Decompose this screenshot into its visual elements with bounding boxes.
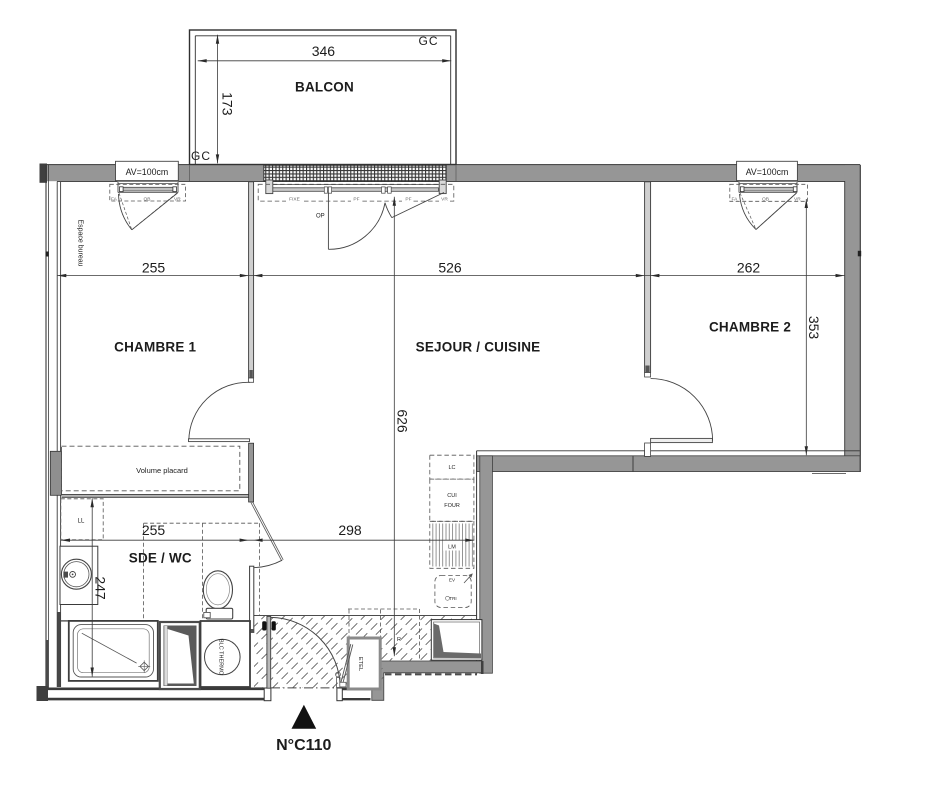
svg-text:SDE / WC: SDE / WC [129, 551, 192, 566]
svg-text:OB: OB [762, 197, 769, 203]
svg-text:PF: PF [353, 197, 359, 203]
svg-text:FA: FA [732, 197, 739, 203]
svg-text:FA: FA [111, 197, 118, 203]
svg-text:CHAMBRE 1: CHAMBRE 1 [114, 340, 196, 355]
svg-text:VR: VR [174, 197, 181, 203]
svg-text:OP: OP [316, 214, 325, 220]
svg-text:LM: LM [448, 545, 456, 551]
svg-text:PF: PF [405, 197, 411, 203]
svg-text:CUI: CUI [447, 493, 457, 499]
svg-text:LC: LC [448, 465, 455, 471]
svg-text:AV=100cm: AV=100cm [126, 167, 169, 177]
svg-text:GC: GC [419, 34, 439, 48]
svg-text:R: R [397, 637, 401, 643]
svg-text:526: 526 [438, 259, 462, 275]
svg-text:AV=100cm: AV=100cm [746, 167, 789, 177]
svg-text:GC: GC [191, 149, 211, 163]
svg-text:TRI: TRI [449, 596, 456, 601]
svg-text:ETEL: ETEL [357, 657, 363, 672]
svg-text:CHAMBRE 2: CHAMBRE 2 [709, 320, 791, 335]
svg-text:BALCON: BALCON [295, 80, 354, 95]
svg-text:Volume placard: Volume placard [136, 466, 188, 475]
svg-text:BLC THERMO: BLC THERMO [218, 639, 224, 676]
svg-text:255: 255 [142, 259, 166, 275]
svg-text:353: 353 [806, 316, 822, 340]
svg-text:173: 173 [220, 92, 236, 116]
svg-text:EV: EV [449, 578, 455, 583]
svg-text:SEJOUR / CUISINE: SEJOUR / CUISINE [416, 340, 541, 355]
svg-text:N°C110: N°C110 [276, 737, 331, 754]
svg-text:LL: LL [78, 519, 85, 525]
svg-text:346: 346 [312, 43, 336, 59]
svg-text:Espace bureau: Espace bureau [77, 219, 84, 266]
svg-text:VR: VR [441, 197, 448, 203]
svg-text:262: 262 [737, 259, 761, 275]
svg-text:FIXE: FIXE [289, 197, 300, 203]
svg-text:OB: OB [144, 197, 151, 203]
svg-text:FOUR: FOUR [444, 503, 460, 509]
svg-text:298: 298 [338, 522, 362, 538]
svg-text:255: 255 [142, 522, 166, 538]
svg-text:VR: VR [794, 197, 801, 203]
svg-text:247: 247 [93, 576, 109, 600]
svg-text:626: 626 [395, 409, 411, 433]
